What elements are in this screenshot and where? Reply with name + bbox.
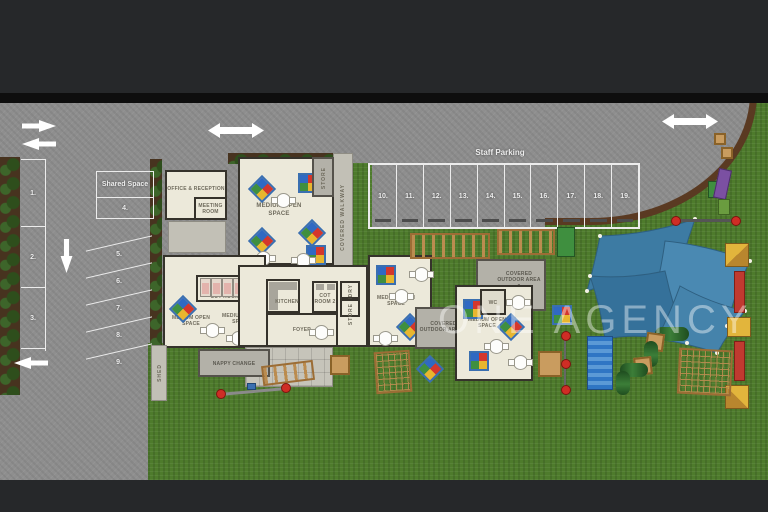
- room-cot-2: COT ROOM 2: [312, 281, 338, 313]
- site-plan-canvas: 1. 2. 3. Shared Space 4. 5. 6. 7. 8. 9. …: [0, 93, 768, 480]
- room-laundry: LAUNDRY: [340, 281, 360, 299]
- room-meeting: MEETING ROOM: [194, 197, 227, 220]
- plan-top-border: [0, 93, 768, 103]
- table-icon: [414, 267, 429, 282]
- parking-bay-11: 11.: [397, 165, 424, 227]
- ball-icon: [561, 359, 571, 369]
- bay-number: 6.: [86, 271, 152, 285]
- watermark: ONE AGENCY: [438, 298, 753, 343]
- green-mat-icon: [557, 227, 575, 257]
- cot-icon: [316, 284, 324, 290]
- bay-number: 11.: [405, 193, 414, 200]
- blue-mat-icon: [587, 336, 613, 390]
- parking-bay-16: 16.: [531, 165, 558, 227]
- see-saw-pivot: [247, 383, 256, 390]
- shared-space-zone: Shared Space 4.: [96, 171, 154, 219]
- covered-walkway-label: COVERED WALKWAY: [340, 184, 346, 251]
- climbing-frame-icon: [497, 229, 555, 255]
- arrow-left-icon: [14, 356, 48, 370]
- parking-bay-3: 3.: [21, 288, 45, 349]
- room-label: STORE: [348, 303, 354, 325]
- arrow-right-icon: [22, 119, 56, 133]
- bay-number: 7.: [86, 298, 152, 312]
- tunnel-icon: [616, 371, 630, 395]
- parking-bay-2: 2.: [21, 227, 45, 288]
- bay-number: 16.: [540, 193, 550, 200]
- bay-number: 14.: [486, 193, 496, 200]
- bay-number: 9.: [86, 352, 152, 366]
- room-label: MEETING ROOM: [196, 203, 225, 216]
- arrow-two-way-icon: [662, 114, 718, 129]
- room-store-1: STORE: [312, 157, 334, 197]
- ball-icon: [671, 216, 681, 226]
- room-label: KITCHEN: [272, 299, 302, 305]
- bay-number: 15.: [513, 193, 523, 200]
- wood-box-icon: [330, 355, 350, 375]
- wood-block-icon: [714, 133, 726, 145]
- parking-bay-4: 4.: [97, 198, 153, 218]
- room-label: STORE: [321, 167, 327, 189]
- table-icon: [378, 331, 393, 346]
- bay-number: 18.: [593, 193, 603, 200]
- room-label: SHED: [157, 364, 163, 382]
- angled-parking-bays: 5. 6. 7. 8. 9.: [86, 243, 152, 377]
- arrow-down-icon: [59, 239, 74, 273]
- cot-icon: [211, 278, 222, 297]
- table-icon: [394, 289, 409, 304]
- parking-bay-14: 14.: [478, 165, 505, 227]
- red-column-icon: [734, 341, 745, 381]
- room-label: OFFICE & RECEPTION: [167, 186, 225, 192]
- room-kitchen: KITCHEN: [266, 279, 300, 313]
- parking-bay-1: 1.: [21, 160, 45, 227]
- arrow-left-icon: [22, 137, 56, 151]
- site-plan-image: 1. 2. 3. Shared Space 4. 5. 6. 7. 8. 9. …: [0, 0, 768, 512]
- parking-bay-15: 15.: [505, 165, 532, 227]
- climbing-frame-icon: [410, 233, 490, 259]
- room-label: COT ROOM 2: [314, 293, 336, 306]
- see-saw-end: [216, 389, 226, 399]
- shared-space-label-box: Shared Space: [97, 172, 153, 198]
- room-label: NAPPY CHANGE: [200, 361, 268, 367]
- ball-icon: [561, 385, 571, 395]
- table-icon: [314, 325, 329, 340]
- room-store-2: STORE: [340, 299, 360, 317]
- entry-path: [168, 221, 226, 253]
- bay-number: 10.: [378, 193, 388, 200]
- parking-bay-13: 13.: [451, 165, 478, 227]
- net-climber-icon: [677, 348, 733, 397]
- bay-number: 2.: [30, 254, 36, 261]
- see-saw-end: [281, 383, 291, 393]
- wood-box-icon: [538, 351, 562, 377]
- cot-icon: [222, 278, 233, 297]
- shared-space-label: Shared Space: [102, 181, 148, 188]
- table-icon: [276, 193, 291, 208]
- street-parking-bays: 1. 2. 3.: [21, 159, 46, 351]
- toy-panel-icon: [718, 199, 730, 215]
- play-mat-icon: [469, 351, 489, 371]
- table-icon: [205, 323, 220, 338]
- shed: SHED: [151, 345, 167, 401]
- net-climber-icon: [374, 350, 413, 394]
- bay-number: 17.: [566, 193, 576, 200]
- ball-icon: [731, 216, 741, 226]
- table-icon: [513, 355, 528, 370]
- bay-number: 5.: [86, 244, 152, 258]
- bay-number: 19.: [620, 193, 630, 200]
- bay-number: 12.: [432, 193, 442, 200]
- parking-bay-10: 10.: [370, 165, 397, 227]
- bay-number: 4.: [122, 205, 128, 212]
- bay-number: 13.: [459, 193, 469, 200]
- nappy-change-area: NAPPY CHANGE: [198, 349, 270, 377]
- bay-number: 3.: [30, 315, 36, 322]
- wood-block-icon: [725, 243, 749, 267]
- cot-icon: [327, 284, 335, 290]
- balance-bar-icon: [676, 219, 734, 222]
- arrow-two-way-icon: [208, 123, 264, 138]
- room-foyer: FOYER: [266, 313, 338, 347]
- play-mat-icon: [376, 265, 396, 285]
- bay-number: 8.: [86, 325, 152, 339]
- cot-icon: [200, 278, 211, 297]
- kitchen-counter: [269, 282, 297, 290]
- play-mat-icon: [298, 219, 326, 247]
- bay-number: 1.: [30, 190, 36, 197]
- parking-bay-12: 12.: [424, 165, 451, 227]
- staff-parking-label: Staff Parking: [440, 148, 560, 157]
- wood-block-icon: [721, 147, 733, 159]
